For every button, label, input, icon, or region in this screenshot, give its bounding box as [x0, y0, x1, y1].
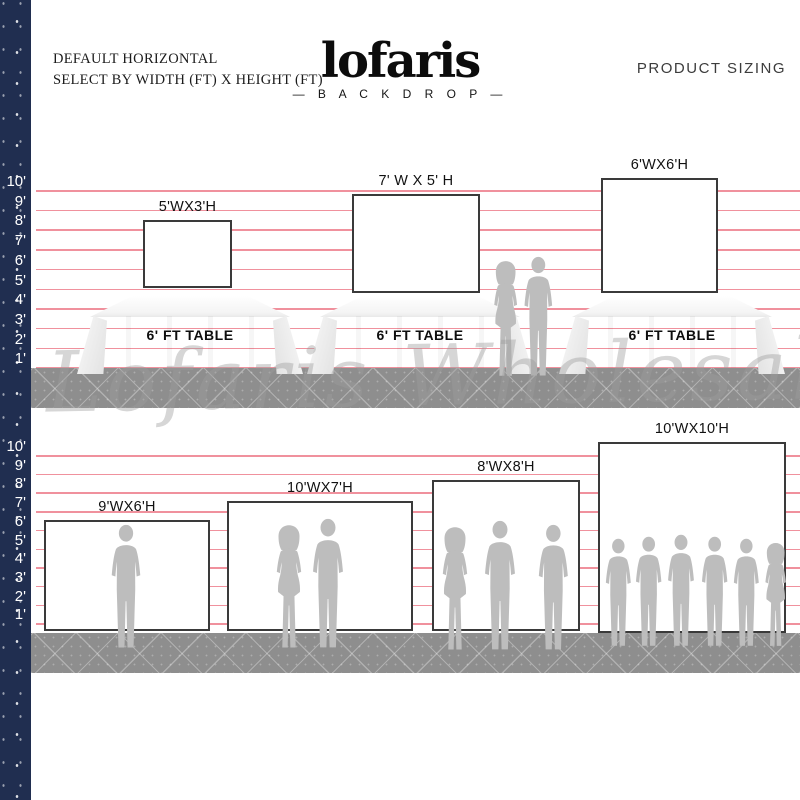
- backdrop-size-label: 8'WX8'H: [407, 459, 605, 479]
- brand-name: lofaris: [293, 36, 508, 86]
- backdrop-size-label: 10'WX7'H: [202, 480, 438, 500]
- backdrop-rect: [352, 194, 480, 293]
- backdrop-size-label: 5'WX3'H: [118, 199, 257, 219]
- ruler-foot-label: 2': [0, 332, 26, 348]
- banquet-table: 6' FT TABLE: [90, 296, 290, 376]
- silhouette-man: [103, 522, 153, 650]
- ruler-foot-label: 4': [0, 292, 26, 308]
- table-top-surface: [572, 296, 772, 317]
- brand-logo: lofaris — B A C K D R O P —: [293, 36, 508, 101]
- ruler-foot-label: 9': [0, 458, 26, 474]
- backdrop-size-label: 9'WX6'H: [19, 499, 235, 519]
- ruler-foot-label: 8': [0, 476, 26, 492]
- table-size-label: 6' FT TABLE: [572, 327, 772, 343]
- size-instruction: DEFAULT HORIZONTAL SELECT BY WIDTH (FT) …: [53, 49, 323, 91]
- silhouette-couple: [262, 514, 362, 650]
- ruler-foot-label: 2': [0, 589, 26, 605]
- backdrop-size-label: 6'WX6'H: [576, 157, 743, 177]
- product-sizing-poster: DEFAULT HORIZONTAL SELECT BY WIDTH (FT) …: [0, 0, 800, 800]
- ruler-foot-label: 1': [0, 351, 26, 367]
- table-top-surface: [90, 296, 290, 317]
- backdrop-size-label: 10'WX10'H: [573, 421, 800, 441]
- ruler-foot-label: 5': [0, 273, 26, 289]
- ruler-foot-label: 9': [0, 194, 26, 210]
- ruler-strip-background: [0, 0, 31, 800]
- ruler-foot-label: 6': [0, 253, 26, 269]
- silhouette-couple-standing: [478, 252, 574, 378]
- ruler-foot-label: 3': [0, 570, 26, 586]
- ruler-foot-label: 10': [0, 174, 26, 190]
- instruction-line-1: DEFAULT HORIZONTAL: [53, 49, 323, 70]
- ruler-foot-label: 3': [0, 312, 26, 328]
- ruler-foot-label: 1': [0, 607, 26, 623]
- ruler-foot-label: 4': [0, 551, 26, 567]
- silhouette-group-of-six: [600, 530, 790, 648]
- ruler-foot-label: 8': [0, 213, 26, 229]
- banquet-table: 6' FT TABLE: [572, 296, 772, 376]
- page-title: PRODUCT SIZING: [637, 60, 786, 77]
- ruler-foot-label: 5': [0, 533, 26, 549]
- backdrop-size-label: 7' W X 5' H: [327, 173, 505, 193]
- ruler-foot-label: 7': [0, 233, 26, 249]
- silhouette-group-of-three: [426, 514, 586, 652]
- instruction-line-2: SELECT BY WIDTH (FT) X HEIGHT (FT): [53, 70, 323, 91]
- ruler-foot-label: 10': [0, 439, 26, 455]
- backdrop-rect: [143, 220, 232, 288]
- brand-tagline: — B A C K D R O P —: [293, 87, 508, 101]
- table-size-label: 6' FT TABLE: [90, 327, 290, 343]
- backdrop-rect: [601, 178, 718, 293]
